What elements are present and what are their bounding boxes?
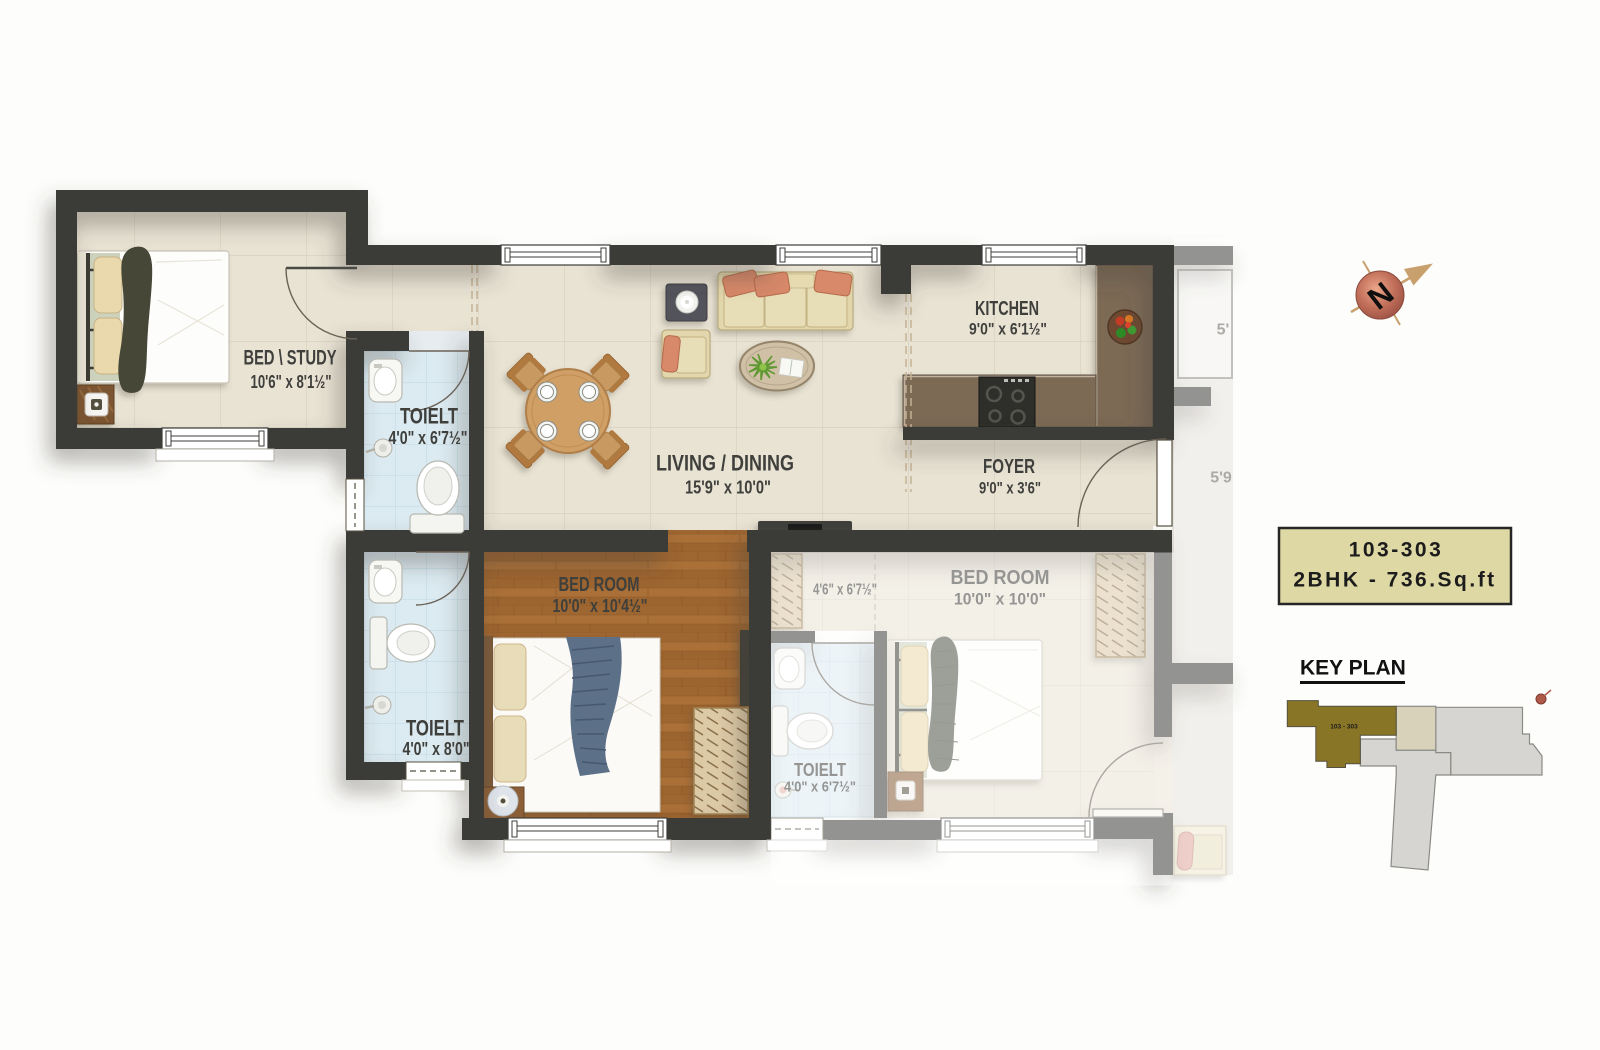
svg-text:BED ROOM: BED ROOM xyxy=(559,574,640,596)
svg-text:TOIELT: TOIELT xyxy=(406,716,464,741)
svg-text:KEY PLAN: KEY PLAN xyxy=(1300,657,1406,680)
svg-text:103-303: 103-303 xyxy=(1349,539,1444,562)
svg-text:15'9" x 10'0": 15'9" x 10'0" xyxy=(685,477,771,498)
svg-text:TOIELT: TOIELT xyxy=(400,404,458,429)
svg-text:4'0" x 8'0": 4'0" x 8'0" xyxy=(403,739,470,759)
svg-text:10'6" x 8'1½": 10'6" x 8'1½" xyxy=(251,372,332,392)
svg-text:2BHK - 736.Sq.ft: 2BHK - 736.Sq.ft xyxy=(1293,569,1496,592)
svg-text:4'0" x 6'7½": 4'0" x 6'7½" xyxy=(389,428,468,448)
svg-text:10'0" x 10'4½": 10'0" x 10'4½" xyxy=(553,596,648,616)
svg-text:LIVING / DINING: LIVING / DINING xyxy=(656,451,794,476)
svg-text:BED \ STUDY: BED \ STUDY xyxy=(244,347,337,370)
svg-text:9'0" x 6'1½": 9'0" x 6'1½" xyxy=(969,320,1047,339)
svg-text:KITCHEN: KITCHEN xyxy=(975,298,1039,320)
svg-text:9'0" x 3'6": 9'0" x 3'6" xyxy=(979,479,1041,498)
svg-text:FOYER: FOYER xyxy=(983,456,1035,478)
svg-text:103 - 303: 103 - 303 xyxy=(1330,724,1358,731)
